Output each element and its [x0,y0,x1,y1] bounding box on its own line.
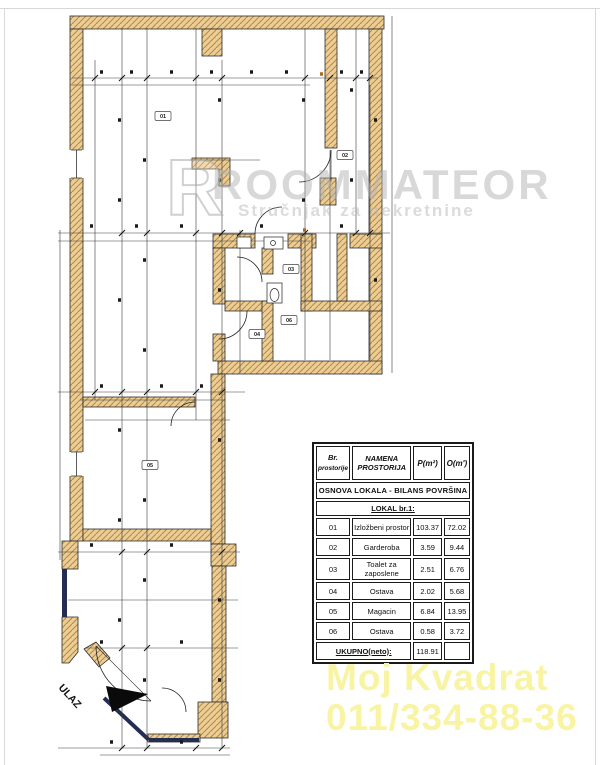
table-section-row: OSNOVA LOKALA - BILANS POVRŠINA [316,482,470,499]
table-row: 03 Toalet za zaposlene 2.51 6.76 [316,558,470,580]
svg-text:01: 01 [160,114,166,120]
table-row: 06 Ostava 0.58 3.72 [316,622,470,640]
cell-room-no: 02 [316,538,350,556]
cell-room-perimeter: 9.44 [444,538,470,556]
cell-room-perimeter: 6.76 [444,558,470,580]
cell-room-area: 2.02 [413,582,441,600]
cell-room-no: 05 [316,602,350,620]
cell-room-name: Garderoba [352,538,411,556]
listing-floorplan-page: 01 02 03 04 05 06 [0,0,600,765]
svg-text:04: 04 [254,332,261,338]
room-label: 04 [249,330,265,339]
table-row: 02 Garderoba 3.59 9.44 [316,538,470,556]
svg-text:06: 06 [286,318,292,324]
cell-room-no: 03 [316,558,350,580]
room-label: 02 [337,151,353,160]
svg-text:02: 02 [342,153,348,159]
agency-name: Moj Kvadrat [326,658,578,698]
col-header-area: P(m²) [413,446,441,480]
table-row: 05 Magacin 6.84 13.95 [316,602,470,620]
cell-room-name: Magacin [352,602,411,620]
cell-room-no: 01 [316,518,350,536]
area-balance-table: Br. prostorije NAMENA PROSTORIJA P(m²) O… [312,442,474,664]
cell-room-no: 04 [316,582,350,600]
cell-room-area: 6.84 [413,602,441,620]
cell-room-perimeter: 13.95 [444,602,470,620]
col-header-purpose: NAMENA PROSTORIJA [352,446,411,480]
cell-room-name: Izložbeni prostor [352,518,411,536]
highlighted-dimension-marks [303,74,323,230]
room-label: 06 [281,316,297,325]
table-row: 01 Izložbeni prostor 103.37 72.02 [316,518,470,536]
cell-room-perimeter: 5.68 [444,582,470,600]
sanitary-fixtures [237,237,283,303]
cell-room-name: Ostava [352,622,411,640]
floor-plan-drawing: 01 02 03 04 05 06 [0,0,600,765]
storefront-glazing [62,569,199,740]
agency-phone: 011/334-88-36 [326,698,578,738]
table-group-row: LOKAL br.1: [316,501,470,516]
table-row: 04 Ostava 2.02 5.68 [316,582,470,600]
room-label: 05 [142,461,158,470]
cell-room-area: 2.51 [413,558,441,580]
cell-room-no: 06 [316,622,350,640]
cell-room-name: Toalet za zaposlene [352,558,411,580]
cell-room-area: 0.58 [413,622,441,640]
entrance-marker: ULAZ [56,682,148,712]
entrance-arrow-icon [106,686,148,712]
group-title: LOKAL br.1: [316,501,470,516]
cell-room-perimeter: 72.02 [444,518,470,536]
cell-room-name: Ostava [352,582,411,600]
room-label: 01 [155,112,171,121]
table-header-row: Br. prostorije NAMENA PROSTORIJA P(m²) O… [316,446,470,480]
cell-room-perimeter: 3.72 [444,622,470,640]
cell-room-area: 3.59 [413,538,441,556]
col-header-room-no: Br. prostorije [316,446,350,480]
cell-room-area: 103.37 [413,518,441,536]
col-header-perimeter: O(m') [444,446,470,480]
svg-text:03: 03 [288,267,294,273]
entrance-label: ULAZ [56,682,84,711]
room-label: 03 [283,265,299,274]
svg-text:05: 05 [147,463,153,469]
section-title: OSNOVA LOKALA - BILANS POVRŠINA [316,482,470,499]
agency-contact: Moj Kvadrat 011/334-88-36 [326,658,578,738]
